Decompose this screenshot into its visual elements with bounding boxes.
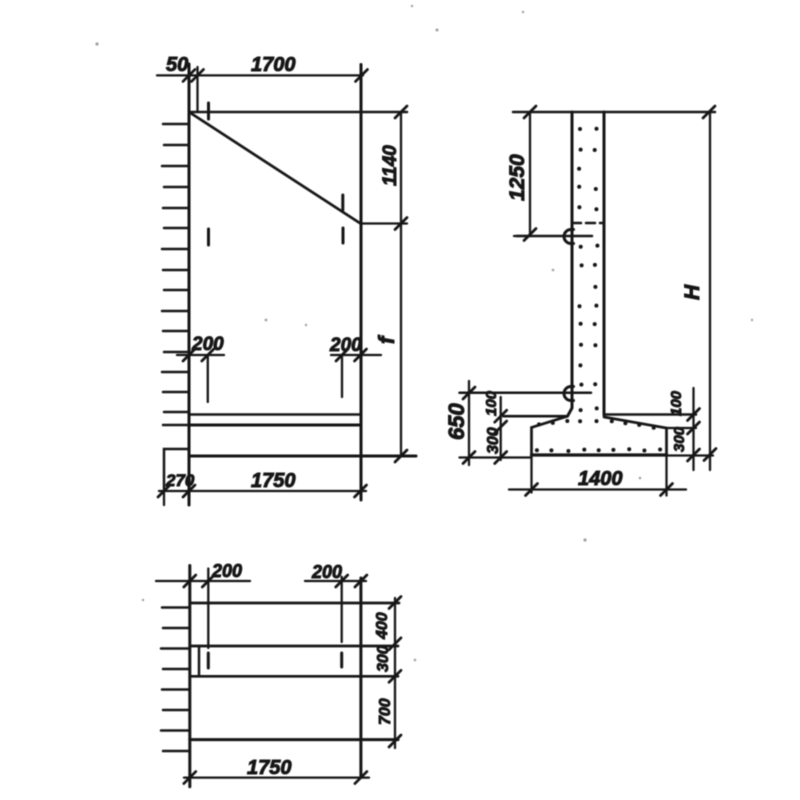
svg-text:300: 300 <box>485 427 502 454</box>
svg-text:50: 50 <box>166 54 188 76</box>
svg-text:700: 700 <box>377 698 394 725</box>
svg-text:1250: 1250 <box>506 154 529 201</box>
svg-text:100: 100 <box>483 390 500 416</box>
svg-text:200: 200 <box>191 334 224 355</box>
svg-text:200: 200 <box>311 562 342 582</box>
svg-text:1400: 1400 <box>578 468 623 490</box>
svg-text:100: 100 <box>668 390 685 416</box>
svg-text:1750: 1750 <box>247 757 292 779</box>
svg-text:H: H <box>681 284 704 300</box>
svg-text:1700: 1700 <box>251 54 296 76</box>
svg-text:200: 200 <box>329 335 362 356</box>
svg-text:200: 200 <box>211 561 242 581</box>
svg-text:1750: 1750 <box>251 470 296 492</box>
svg-text:300: 300 <box>671 426 688 452</box>
svg-text:270: 270 <box>165 471 195 490</box>
svg-text:f: f <box>374 334 399 344</box>
svg-text:1140: 1140 <box>380 145 401 186</box>
svg-text:400: 400 <box>374 612 391 640</box>
svg-text:300: 300 <box>375 645 392 672</box>
svg-text:650: 650 <box>444 403 469 440</box>
